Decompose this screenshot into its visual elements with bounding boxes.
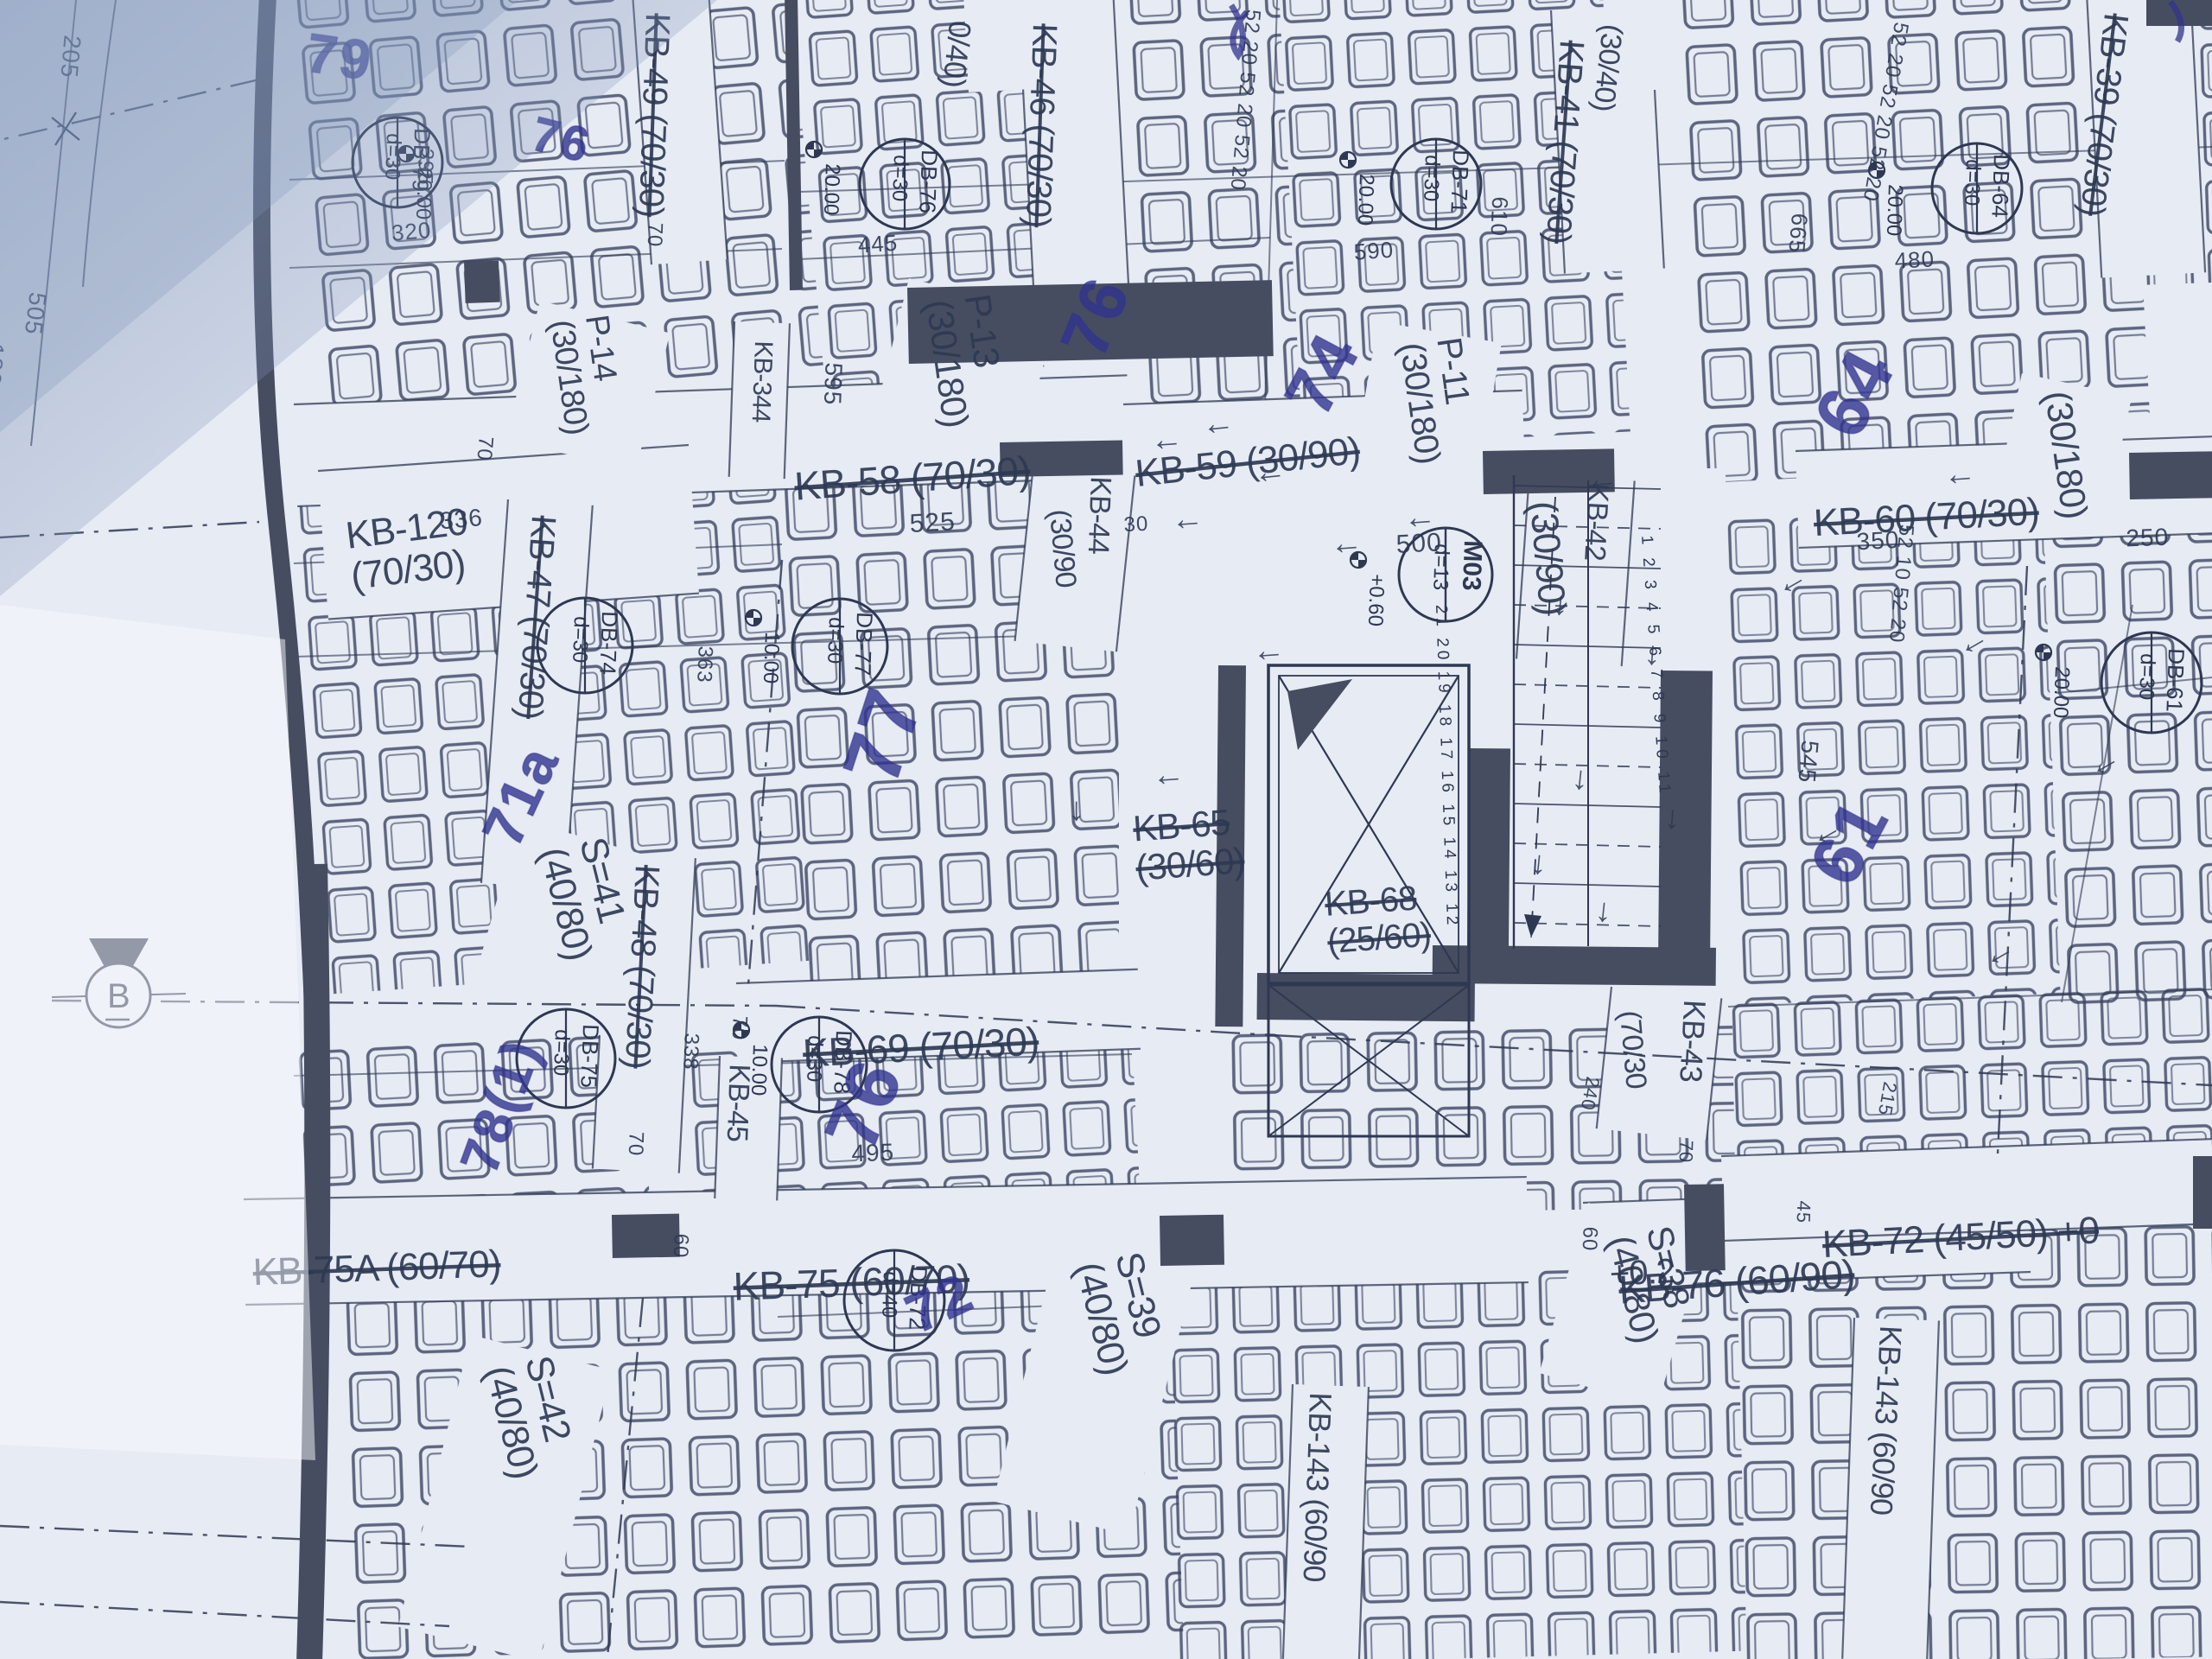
detail-bubble-dia: d=30 bbox=[549, 1029, 574, 1077]
wall-segment bbox=[1467, 748, 1510, 956]
detail-bubble-dia: d=30 bbox=[568, 616, 593, 664]
dimension-label: 480 bbox=[1894, 245, 1935, 273]
svg-text:←: ← bbox=[1329, 524, 1364, 563]
svg-text:←: ← bbox=[1585, 460, 1620, 499]
svg-text:M03: M03 bbox=[1457, 540, 1487, 591]
detail-bubble-name: DB-75 bbox=[575, 1024, 604, 1089]
dimension-label: 60 bbox=[1578, 1226, 1602, 1252]
wall-segment bbox=[1257, 973, 1475, 1021]
svg-text:336: 336 bbox=[439, 504, 484, 534]
svg-text:665: 665 bbox=[1783, 213, 1813, 255]
wall-segment bbox=[1684, 1184, 1726, 1271]
beam-label: (30/90 bbox=[1043, 508, 1083, 588]
svg-text:KB-344: KB-344 bbox=[747, 340, 778, 423]
paper-glare bbox=[0, 605, 315, 1460]
span-arrow: ← bbox=[1585, 460, 1620, 499]
svg-text:60: 60 bbox=[669, 1233, 693, 1259]
level-value: 20.00 bbox=[819, 163, 844, 216]
svg-text:↓: ↓ bbox=[1662, 799, 1681, 836]
span-arrow: ← bbox=[1942, 454, 1978, 493]
rebar-grid-zone bbox=[2046, 478, 2212, 1006]
beam-label: (70/30 bbox=[1613, 1009, 1653, 1090]
wall-segment bbox=[2193, 1156, 2212, 1229]
detail-bubble-dia: d=30 bbox=[887, 155, 912, 202]
svg-text:545: 545 bbox=[1793, 740, 1823, 785]
svg-text:←: ← bbox=[1151, 755, 1186, 794]
detail-bubble-dia: d=30 bbox=[1419, 155, 1444, 202]
dimension-label: 70 bbox=[728, 1015, 752, 1041]
detail-bubble-name: DB-76 bbox=[914, 149, 943, 214]
detail-bubble-dia: d=30 bbox=[823, 617, 848, 664]
beam-label: KB-344 bbox=[747, 340, 778, 423]
dimension-label: 338 bbox=[678, 1033, 702, 1071]
svg-text:480: 480 bbox=[1894, 245, 1935, 273]
detail-bubble-name: DB-77 bbox=[849, 612, 878, 677]
span-arrow: ← bbox=[1053, 795, 1090, 828]
span-arrow: ← bbox=[1252, 452, 1288, 492]
detail-bubble-dia: d=30 bbox=[2134, 653, 2159, 701]
span-arrow: ← bbox=[1251, 631, 1287, 670]
svg-text:250: 250 bbox=[2126, 524, 2170, 552]
detail-bubble-name: DB-64 bbox=[1986, 154, 2015, 219]
beam-label: KB-45 bbox=[721, 1064, 756, 1142]
beam-label: KB-44 bbox=[1082, 476, 1117, 555]
beam-label: KB-143 (60/90 bbox=[1297, 1392, 1339, 1582]
dimension-label: 595 bbox=[819, 362, 848, 406]
svg-text:←: ← bbox=[1402, 498, 1438, 537]
svg-text:KB-143 (60/90: KB-143 (60/90 bbox=[1297, 1392, 1339, 1582]
dimension-label: 610 bbox=[1486, 196, 1514, 237]
svg-text:←: ← bbox=[1053, 795, 1090, 828]
svg-text:363: 363 bbox=[692, 645, 716, 683]
svg-text:338: 338 bbox=[678, 1033, 702, 1071]
svg-text:610: 610 bbox=[1486, 196, 1514, 237]
span-arrow: ← bbox=[1329, 524, 1364, 563]
svg-text:←: ← bbox=[1251, 631, 1287, 670]
svg-text:30: 30 bbox=[1123, 512, 1149, 537]
beam-label: 0/40) bbox=[936, 19, 978, 89]
svg-text:590: 590 bbox=[1353, 237, 1395, 265]
level-value: 20.00 bbox=[1882, 184, 1907, 237]
blueprint-drawing: 21 20 19 18 17 16 15 14 13 121 2 3 4 5 6… bbox=[0, 0, 2212, 1659]
level-value: 20.00 bbox=[2049, 666, 2074, 719]
svg-text:(70/30: (70/30 bbox=[1613, 1009, 1653, 1090]
dimension-label: 590 bbox=[1353, 237, 1395, 265]
svg-text:KB-45: KB-45 bbox=[721, 1064, 756, 1142]
detail-bubble-name: DB-74 bbox=[594, 611, 623, 676]
wall-segment bbox=[2129, 451, 2212, 499]
svg-text:KB-43: KB-43 bbox=[1673, 999, 1713, 1083]
beam-label: KB-43 bbox=[1673, 999, 1713, 1083]
level-value: +0.60 bbox=[1363, 574, 1389, 627]
dimension-label: 445 bbox=[857, 230, 899, 258]
detail-bubble-dia: d=30 bbox=[1960, 159, 1985, 207]
svg-text:←: ← bbox=[1942, 454, 1978, 493]
dimension-label: 45 bbox=[1792, 1200, 1815, 1224]
detail-bubble-name: DB-61 bbox=[2161, 648, 2190, 713]
level-value: 10.00 bbox=[759, 632, 784, 684]
span-arrow: ← bbox=[1200, 404, 1236, 443]
dimension-label: 336 bbox=[439, 504, 484, 534]
svg-text:350: 350 bbox=[1856, 526, 1900, 556]
svg-text:70: 70 bbox=[472, 435, 497, 462]
svg-text:60: 60 bbox=[1578, 1226, 1602, 1252]
svg-text:45: 45 bbox=[1792, 1200, 1815, 1224]
svg-text:←: ← bbox=[1252, 452, 1288, 492]
dimension-label: 70 bbox=[624, 1131, 648, 1157]
dimension-label: 70 bbox=[643, 222, 667, 248]
svg-text:595: 595 bbox=[819, 362, 848, 406]
svg-text:70: 70 bbox=[728, 1015, 752, 1041]
dimension-label: 70 bbox=[1675, 1140, 1697, 1163]
svg-text:KB-44: KB-44 bbox=[1082, 476, 1117, 555]
beam-label: KB-65(30/60) bbox=[1132, 801, 1246, 888]
span-arrow: ← bbox=[1151, 755, 1186, 794]
wall-segment bbox=[1160, 1215, 1224, 1266]
svg-text:70: 70 bbox=[643, 222, 667, 248]
span-arrow: ← bbox=[1402, 498, 1438, 537]
detail-bubble-name: DB-71 bbox=[1446, 149, 1474, 214]
svg-text:445: 445 bbox=[857, 230, 899, 258]
dimension-label: 60 bbox=[669, 1233, 693, 1259]
span-arrow: ← bbox=[1149, 420, 1185, 459]
dimension-label: 525 bbox=[909, 507, 957, 538]
blueprint-photo: 21 20 19 18 17 16 15 14 13 121 2 3 4 5 6… bbox=[0, 0, 2212, 1659]
svg-text:KB-46 (70/30): KB-46 (70/30) bbox=[1019, 23, 1064, 228]
svg-text:KB-65(30/60): KB-65(30/60) bbox=[1132, 801, 1246, 888]
svg-text:70: 70 bbox=[624, 1131, 648, 1157]
svg-text:525: 525 bbox=[909, 507, 957, 538]
svg-text:KB-68(25/60): KB-68(25/60) bbox=[1324, 879, 1433, 961]
level-value: 20.00 bbox=[1353, 174, 1378, 226]
span-arrow: ← bbox=[1170, 499, 1205, 538]
svg-text:0/40): 0/40) bbox=[936, 19, 978, 89]
dimension-label: 545 bbox=[1793, 740, 1823, 785]
wall-segment bbox=[464, 261, 500, 303]
beam-label: KB-46 (70/30) bbox=[1019, 23, 1064, 228]
dimension-label: 350 bbox=[1856, 526, 1900, 556]
svg-text:←: ← bbox=[1200, 404, 1236, 443]
dimension-label: 250 bbox=[2126, 524, 2170, 552]
dimension-label: 363 bbox=[692, 645, 716, 683]
svg-text:↓: ↓ bbox=[1643, 635, 1662, 672]
span-arrow: ↓ bbox=[1662, 799, 1681, 836]
dimension-label: 665 bbox=[1783, 213, 1813, 255]
beam-label: KB-68(25/60) bbox=[1324, 879, 1433, 961]
span-arrow: ↓ bbox=[1643, 635, 1662, 672]
svg-text:70: 70 bbox=[1675, 1140, 1697, 1163]
svg-text:←: ← bbox=[1170, 499, 1205, 538]
dimension-label: 30 bbox=[1123, 512, 1149, 537]
svg-text:←: ← bbox=[1149, 420, 1185, 459]
dimension-label: 70 bbox=[472, 435, 497, 462]
svg-text:(30/90: (30/90 bbox=[1043, 508, 1083, 588]
